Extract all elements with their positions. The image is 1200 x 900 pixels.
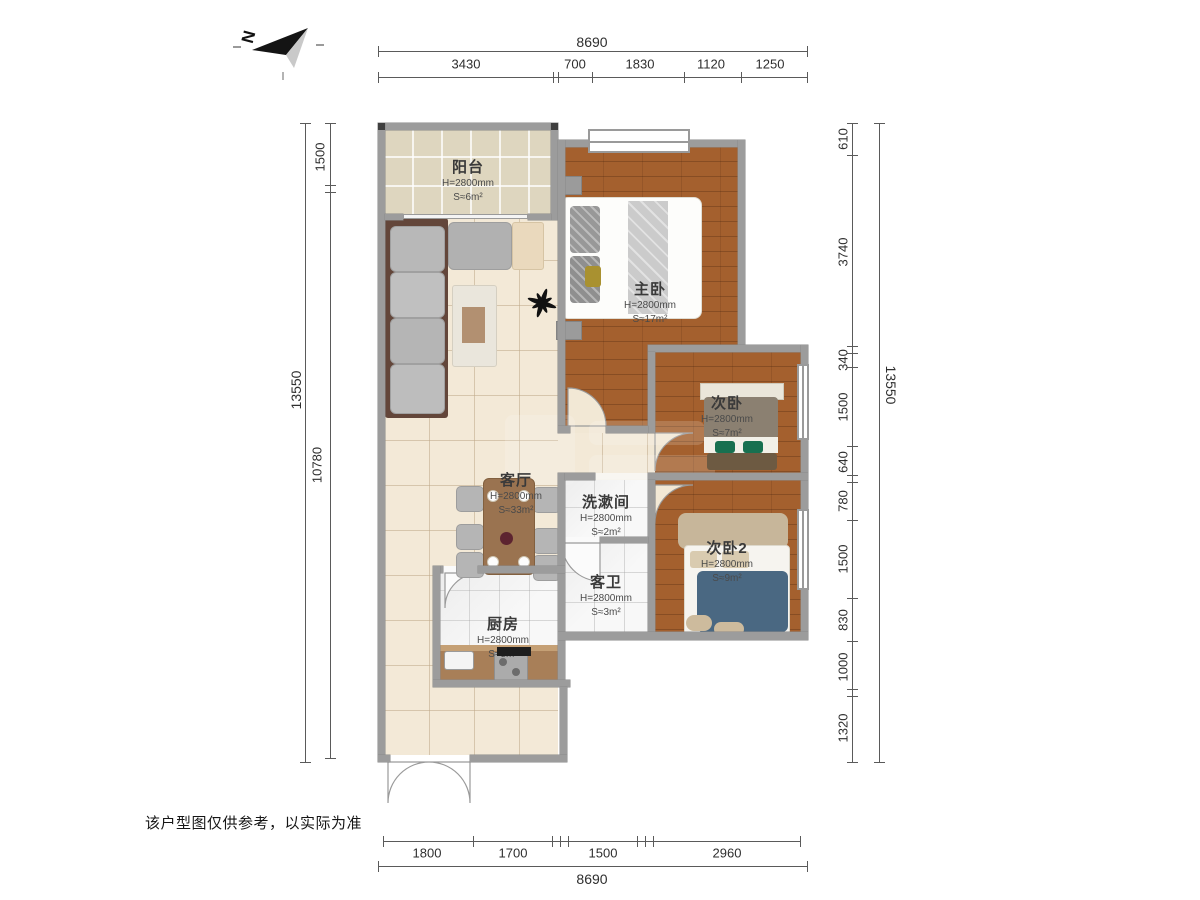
- north-dash: [316, 44, 324, 46]
- wall-marble-right: [648, 480, 655, 632]
- bedroom3-stool: [686, 615, 712, 631]
- dim-right-total: 13550: [883, 366, 899, 405]
- pillar: [378, 123, 385, 130]
- dim-left-seg: 10780: [310, 447, 325, 483]
- dim-tick: [741, 72, 742, 83]
- dim-tick: [847, 689, 858, 690]
- wall-bottom-a: [378, 755, 390, 762]
- entry-threshold: [390, 755, 470, 762]
- dim-tick: [325, 123, 336, 124]
- bedroom3-window: [797, 509, 809, 590]
- dim-top-seg: 1830: [626, 57, 655, 72]
- dim-line-bottom-total: [378, 866, 807, 867]
- dim-tick: [847, 482, 858, 483]
- dim-right-seg: 830: [836, 609, 851, 631]
- room-label-master-bedroom: 主卧H=2800mmS≈17m²: [624, 282, 676, 325]
- master-window: [588, 129, 690, 153]
- wall-kitchen-bottom: [433, 680, 570, 687]
- dim-tick: [807, 861, 808, 872]
- dim-line-bottom-segments: [383, 841, 800, 842]
- stove-burner: [512, 668, 520, 676]
- dim-tick: [645, 836, 646, 847]
- wall-kitchen-top-b: [478, 566, 565, 573]
- bedroom2-bed-bench: [707, 453, 777, 470]
- dim-tick: [807, 46, 808, 57]
- dim-bottom-seg: 1800: [413, 846, 442, 861]
- dim-tick: [847, 123, 858, 124]
- room-label-balcony: 阳台H=2800mmS≈6m²: [442, 160, 494, 203]
- balcony-slider-door: [403, 214, 528, 219]
- dining-chair: [456, 552, 484, 578]
- dim-tick: [847, 762, 858, 763]
- entry-door-arcs: [388, 762, 470, 803]
- dim-top-seg: 700: [564, 57, 586, 72]
- dim-right-seg: 1500: [836, 545, 851, 574]
- dim-right-seg: 1320: [836, 714, 851, 743]
- wall-bedroom-divider: [648, 473, 808, 480]
- north-arrow-icon: [252, 28, 308, 80]
- dim-tick: [847, 598, 858, 599]
- dim-tick: [874, 123, 885, 124]
- dim-right-seg: 780: [836, 490, 851, 512]
- dim-line-left-segments: [330, 123, 331, 758]
- wall-kitchen-left: [433, 566, 440, 687]
- dim-tick: [847, 520, 858, 521]
- room-label-bedroom2: 次卧H=2800mmS≈7m²: [701, 396, 753, 439]
- dim-tick: [847, 346, 858, 347]
- north-dash: [233, 46, 241, 48]
- dim-right-seg: 640: [836, 451, 851, 473]
- wall-master-bottom-b: [606, 426, 648, 433]
- bedroom2-window: [797, 364, 809, 440]
- wall-master-right: [738, 140, 745, 352]
- bedroom2-green-cushion: [715, 441, 735, 453]
- sofa-cushion: [390, 318, 445, 364]
- dim-tick: [383, 836, 384, 847]
- dim-tick: [592, 72, 593, 83]
- sofa-chaise: [448, 222, 512, 270]
- dim-line-left-total: [305, 123, 306, 762]
- dim-bottom-seg: 1700: [499, 846, 528, 861]
- dim-bottom-total: 8690: [576, 871, 607, 887]
- dim-line-top-total: [378, 51, 807, 52]
- wall-master-bottom-a: [558, 426, 570, 433]
- wall-marble-left: [558, 473, 565, 687]
- dim-tick: [325, 185, 336, 186]
- dim-right-seg: 1500: [836, 393, 851, 422]
- dining-chair: [456, 524, 484, 550]
- side-table: [512, 222, 544, 270]
- dim-tick: [847, 155, 858, 156]
- dim-top-total: 8690: [576, 34, 607, 50]
- dim-left-total: 13550: [288, 371, 304, 410]
- wall-bedroom2-left: [648, 352, 655, 433]
- kitchen-hood: [497, 647, 531, 656]
- table-centerpiece: [500, 532, 513, 545]
- dim-top-seg: 1120: [697, 57, 725, 72]
- dim-bottom-seg: 2960: [713, 846, 742, 861]
- dim-tick: [800, 836, 801, 847]
- dim-right-seg: 340: [836, 349, 851, 371]
- dim-tick: [847, 696, 858, 697]
- dim-tick: [560, 836, 561, 847]
- dim-tick: [553, 72, 554, 83]
- room-label-living-room: 客厅H=2800mmS≈33m²: [490, 473, 542, 516]
- dim-left-seg: 1500: [313, 143, 328, 172]
- dim-tick: [378, 72, 379, 83]
- kitchen-sink: [444, 651, 474, 670]
- dim-tick: [847, 475, 858, 476]
- floorplan-canvas: N 阳台H=2800mmS≈6m² 主卧H=2800mmS≈17m² 次卧H=2…: [0, 0, 1200, 900]
- master-bed-pillow: [570, 206, 600, 253]
- wall-master-left: [558, 140, 565, 433]
- wall-balcony-top: [378, 123, 558, 130]
- dim-tick: [637, 836, 638, 847]
- dining-chair: [456, 486, 484, 512]
- sofa-cushion: [390, 226, 445, 272]
- dim-tick: [378, 46, 379, 57]
- dim-tick: [847, 641, 858, 642]
- dim-tick: [325, 758, 336, 759]
- dim-tick: [874, 762, 885, 763]
- coffee-table-top: [462, 307, 485, 343]
- room-label-washroom: 洗漱间H=2800mmS≈2m²: [580, 495, 632, 538]
- master-bed-accent-pillow: [585, 266, 601, 287]
- bedroom2-green-cushion: [743, 441, 763, 453]
- sofa-cushion: [390, 364, 445, 414]
- dim-line-right-segments: [852, 123, 853, 762]
- wall-washroom-top: [565, 473, 595, 480]
- dim-line-right-total: [879, 123, 880, 762]
- dim-top-seg: 1250: [756, 57, 785, 72]
- wall-bottomright-outer: [558, 632, 808, 640]
- dining-chair: [533, 528, 561, 554]
- balcony-partition-stub: [385, 214, 403, 220]
- dim-tick: [847, 446, 858, 447]
- wall-balcony-right: [551, 123, 558, 220]
- dim-top-seg: 3430: [452, 57, 481, 72]
- dim-right-seg: 3740: [836, 238, 851, 267]
- north-label: N: [238, 28, 260, 45]
- dim-tick: [552, 836, 553, 847]
- wall-bottom-b: [470, 755, 567, 762]
- balcony-partition-stub: [528, 214, 551, 220]
- dim-tick: [300, 762, 311, 763]
- wall-left-outer: [378, 123, 385, 762]
- pillar: [551, 123, 558, 130]
- dim-tick: [325, 192, 336, 193]
- wall-lowerright-outer: [560, 687, 567, 762]
- dim-tick: [568, 836, 569, 847]
- room-label-guest-bath: 客卫H=2800mmS≈3m²: [580, 575, 632, 618]
- dim-bottom-seg: 1500: [589, 846, 618, 861]
- dim-tick: [300, 123, 311, 124]
- dim-tick: [378, 861, 379, 872]
- dim-tick: [473, 836, 474, 847]
- dim-tick: [684, 72, 685, 83]
- dim-right-seg: 1000: [836, 653, 851, 682]
- room-label-bedroom3: 次卧2H=2800mmS≈9m²: [701, 541, 753, 584]
- dim-tick: [558, 72, 559, 83]
- disclaimer-text: 该户型图仅供参考，以实际为准: [145, 812, 362, 833]
- sofa-cushion: [390, 272, 445, 318]
- dim-right-seg: 610: [836, 128, 851, 150]
- dim-tick: [653, 836, 654, 847]
- dim-tick: [807, 72, 808, 83]
- wall-bedroom2-top: [648, 345, 808, 352]
